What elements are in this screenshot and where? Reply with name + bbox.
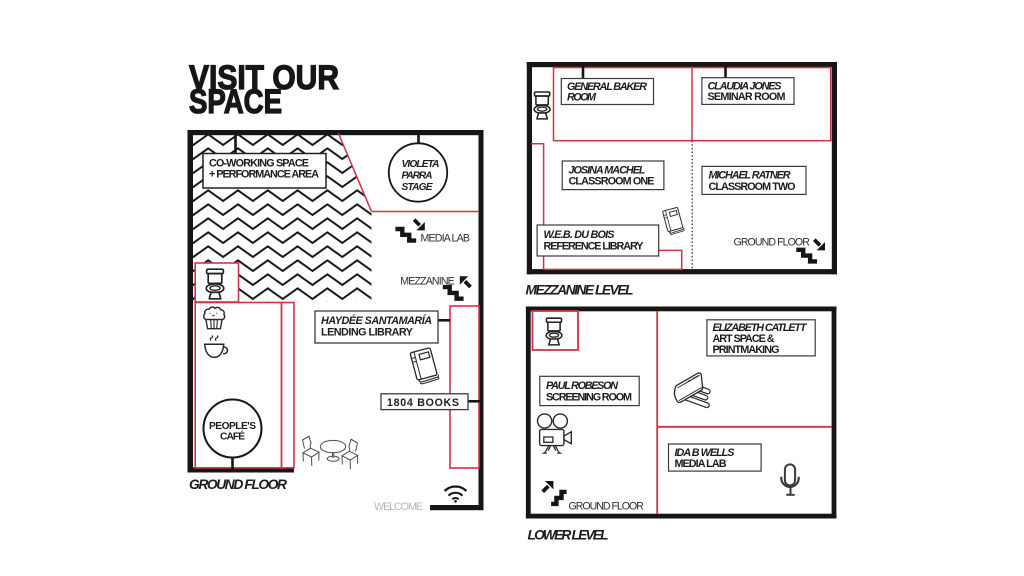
svg-text:PARRA: PARRA (402, 170, 433, 181)
svg-text:ROOM: ROOM (567, 92, 597, 104)
svg-text:GROUND FLOOR: GROUND FLOOR (569, 501, 645, 513)
svg-text:SPACE: SPACE (189, 83, 282, 121)
svg-text:+ PERFORMANCE AREA: + PERFORMANCE AREA (209, 169, 319, 181)
svg-text:MEDIA LAB: MEDIA LAB (421, 233, 471, 245)
svg-text:MICHAEL RATNER: MICHAEL RATNER (709, 170, 791, 182)
svg-text:HAYDÉE SANTAMARÍA: HAYDÉE SANTAMARÍA (321, 314, 432, 327)
svg-text:REFERENCE LIBRARY: REFERENCE LIBRARY (544, 241, 645, 253)
svg-text:SCREENING ROOM: SCREENING ROOM (546, 391, 632, 403)
svg-text:MEZZANINE LEVEL: MEZZANINE LEVEL (526, 283, 634, 298)
svg-text:WELCOME: WELCOME (374, 501, 424, 513)
svg-text:CAFÉ: CAFÉ (220, 429, 245, 442)
svg-text:VIOLETA: VIOLETA (402, 159, 440, 170)
svg-text:PAUL ROBESON: PAUL ROBESON (546, 380, 618, 392)
svg-text:GROUND FLOOR: GROUND FLOOR (734, 237, 811, 249)
svg-text:PRINTMAKING: PRINTMAKING (713, 344, 780, 356)
svg-text:STAGE: STAGE (402, 182, 434, 193)
svg-text:CLASSROOM TWO: CLASSROOM TWO (709, 181, 796, 193)
svg-text:LENDING LIBRARY: LENDING LIBRARY (321, 327, 414, 339)
svg-text:MEDIA LAB: MEDIA LAB (675, 458, 727, 470)
svg-text:W.E.B. DU BOIS: W.E.B. DU BOIS (544, 229, 616, 241)
svg-text:PEOPLE'S: PEOPLE'S (209, 421, 256, 432)
svg-text:1804 BOOKS: 1804 BOOKS (387, 397, 459, 409)
svg-text:GROUND FLOOR: GROUND FLOOR (189, 477, 287, 492)
svg-text:JOSINA MACHEL: JOSINA MACHEL (569, 165, 646, 177)
svg-text:CLASSROOM ONE: CLASSROOM ONE (569, 176, 655, 188)
svg-text:SEMINAR ROOM: SEMINAR ROOM (708, 91, 786, 103)
svg-text:LOWER LEVEL: LOWER LEVEL (528, 528, 609, 543)
